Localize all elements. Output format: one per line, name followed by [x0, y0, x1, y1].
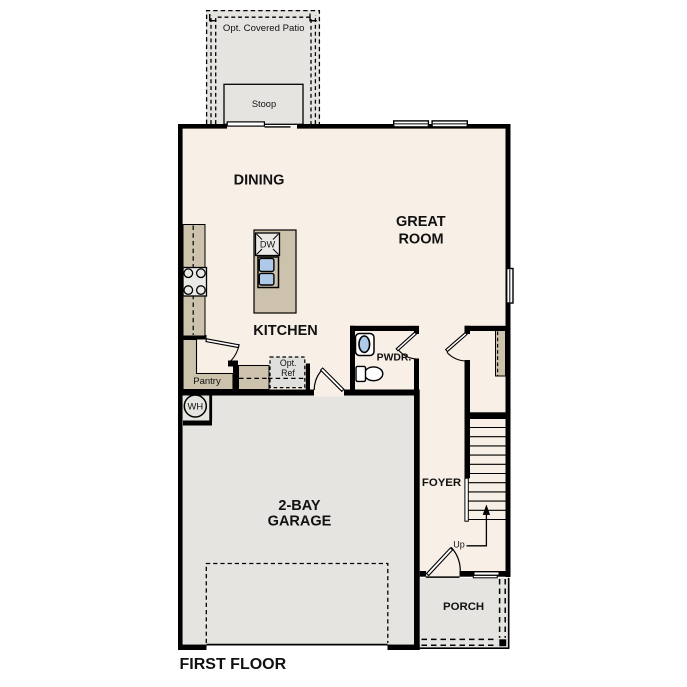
svg-text:Stoop: Stoop	[252, 99, 276, 109]
svg-text:DW: DW	[260, 239, 276, 249]
svg-text:PWDR.: PWDR.	[377, 352, 412, 363]
svg-text:GREAT: GREAT	[396, 214, 446, 230]
svg-text:2-BAY: 2-BAY	[278, 498, 321, 514]
svg-text:Opt.: Opt.	[280, 358, 297, 368]
svg-text:ROOM: ROOM	[398, 232, 443, 248]
svg-text:Pantry: Pantry	[193, 376, 221, 387]
svg-text:GARAGE: GARAGE	[268, 514, 332, 530]
svg-text:Opt. Covered Patio: Opt. Covered Patio	[223, 23, 305, 34]
svg-text:FIRST FLOOR: FIRST FLOOR	[180, 656, 287, 673]
svg-text:DINING: DINING	[234, 172, 285, 188]
svg-text:WH: WH	[187, 401, 203, 412]
svg-text:PORCH: PORCH	[443, 601, 484, 613]
svg-text:FOYER: FOYER	[422, 477, 461, 489]
svg-text:Ref: Ref	[281, 368, 295, 378]
svg-text:Up: Up	[453, 540, 465, 550]
svg-text:KITCHEN: KITCHEN	[253, 323, 317, 339]
